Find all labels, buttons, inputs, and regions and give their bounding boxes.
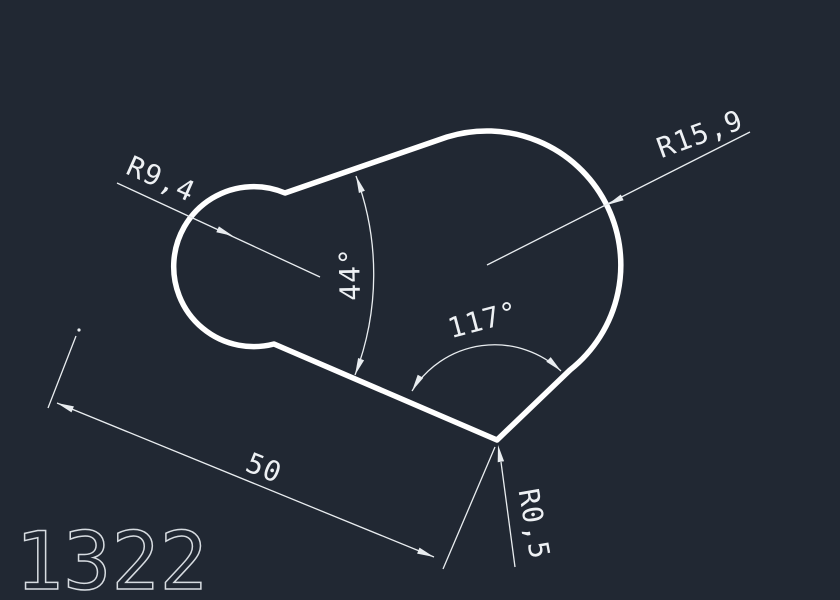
dimension-angle-small: 44°	[333, 176, 374, 375]
angle-large-arc	[412, 345, 561, 391]
length-extension-line-right	[443, 447, 495, 569]
radius-right-arrowhead	[607, 195, 624, 206]
angle-small-arrowhead-top	[356, 176, 365, 193]
length-extension-origin-dot	[77, 328, 80, 331]
part-outline	[174, 131, 621, 440]
length-arrowhead-right	[417, 548, 434, 557]
radius-left-arrowhead	[216, 226, 233, 236]
length-extension-line-left	[48, 336, 76, 408]
angle-small-arrowhead-bottom	[355, 358, 364, 375]
cad-drawing-canvas: R9,4 R15,9 44° 117°	[0, 0, 840, 600]
length-label: 50	[241, 446, 286, 490]
dimension-corner-radius: R0,5	[498, 445, 557, 567]
angle-small-label: 44°	[333, 247, 367, 301]
angle-large-arrowhead-right	[546, 357, 561, 371]
radius-right-label: R15,9	[652, 103, 747, 165]
dimension-radius-left: R9,4	[117, 149, 320, 277]
corner-radius-label: R0,5	[512, 486, 557, 562]
part-outline-path	[174, 131, 621, 440]
cad-viewport[interactable]: R9,4 R15,9 44° 117°	[0, 0, 840, 600]
angle-large-arrowhead-left	[412, 375, 423, 391]
radius-left-label: R9,4	[122, 149, 201, 208]
angle-large-label: 117°	[444, 295, 522, 345]
drawing-number: 1322	[15, 515, 208, 600]
dimension-angle-large: 117°	[412, 295, 561, 391]
corner-radius-leader-line	[501, 462, 515, 567]
length-arrowhead-left	[57, 403, 74, 412]
corner-radius-arrowhead	[498, 445, 504, 462]
